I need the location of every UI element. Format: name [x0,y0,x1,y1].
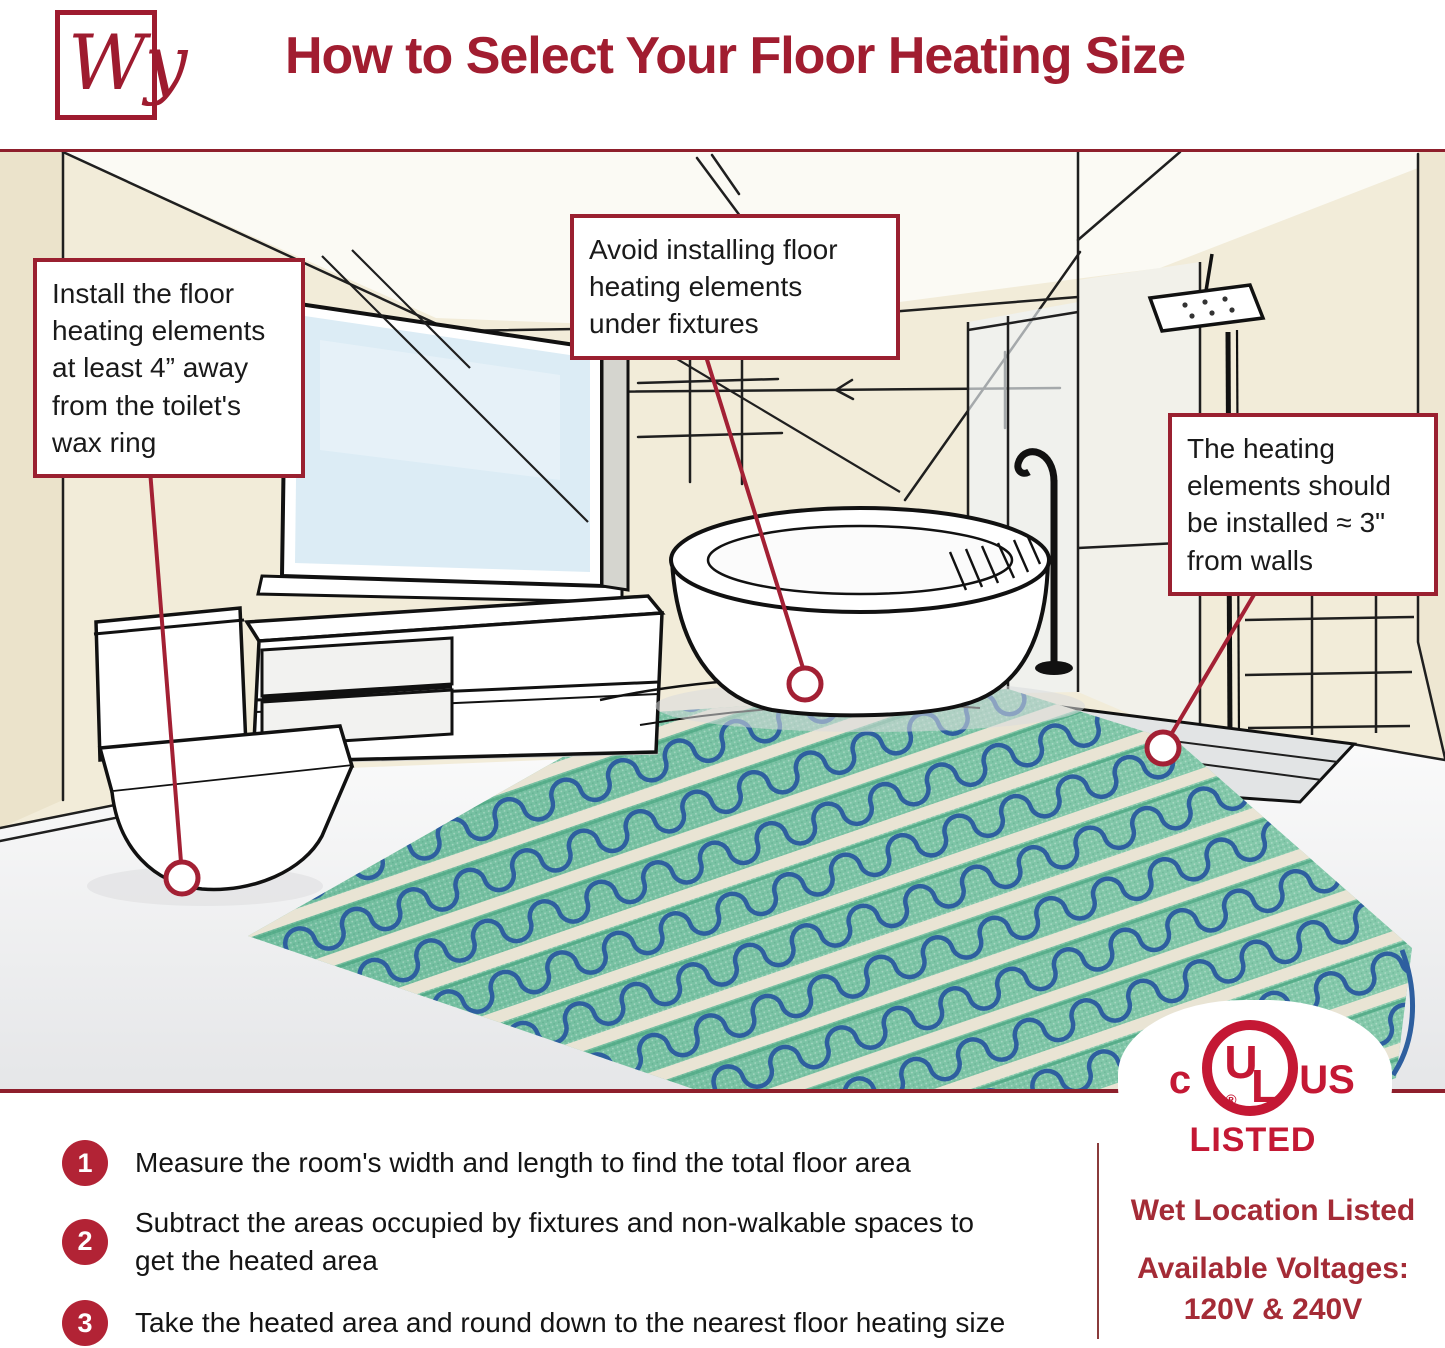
page-title: How to Select Your Floor Heating Size [170,26,1300,86]
ul-listed-label: LISTED [1190,1121,1317,1159]
step-2-text: Subtract the areas occupied by fixtures … [135,1204,1145,1280]
step-3-badge: 3 [62,1300,108,1346]
step-2: 2 Subtract the areas occupied by fixture… [62,1204,1145,1280]
marker-wall-gap [1147,732,1179,764]
callout-wall-clearance: The heating elements should be installed… [1168,413,1438,596]
ul-prefix-c: c [1169,1058,1191,1102]
left-wall [0,152,63,828]
footer-certifications: Wet Location Listed Available Voltages: … [1106,1192,1440,1329]
callout-avoid-fixtures: Avoid installing floor heating elements … [570,214,900,360]
illustration-bottom-border-left [0,1089,1163,1093]
step-1-text: Measure the room's width and length to f… [135,1144,1145,1182]
footer-divider [1097,1143,1099,1339]
ul-mark-l: L [1251,1060,1279,1112]
step-3: 3 Take the heated area and round down to… [62,1300,1145,1346]
page: Wy How to Select Your Floor Heating Size [0,0,1445,1348]
callout-toilet-clearance: Install the floor heating elements at le… [33,258,305,478]
wet-location-label: Wet Location Listed [1106,1192,1440,1230]
ul-listed-mark: U L ® c US LISTED [1146,1008,1360,1160]
marker-bathtub-base [789,668,821,700]
marker-toilet-wax-ring [166,862,198,894]
step-3-text: Take the heated area and round down to t… [135,1304,1145,1342]
voltages-label: Available Voltages: [1106,1250,1440,1288]
brand-logo: Wy [55,10,157,120]
voltages-value: 120V & 240V [1106,1291,1440,1329]
ul-suffix-us: US [1299,1058,1355,1102]
step-2-badge: 2 [62,1219,108,1265]
step-1-badge: 1 [62,1140,108,1186]
ul-registered-symbol: ® [1225,1092,1236,1109]
step-1: 1 Measure the room's width and length to… [62,1140,1145,1186]
